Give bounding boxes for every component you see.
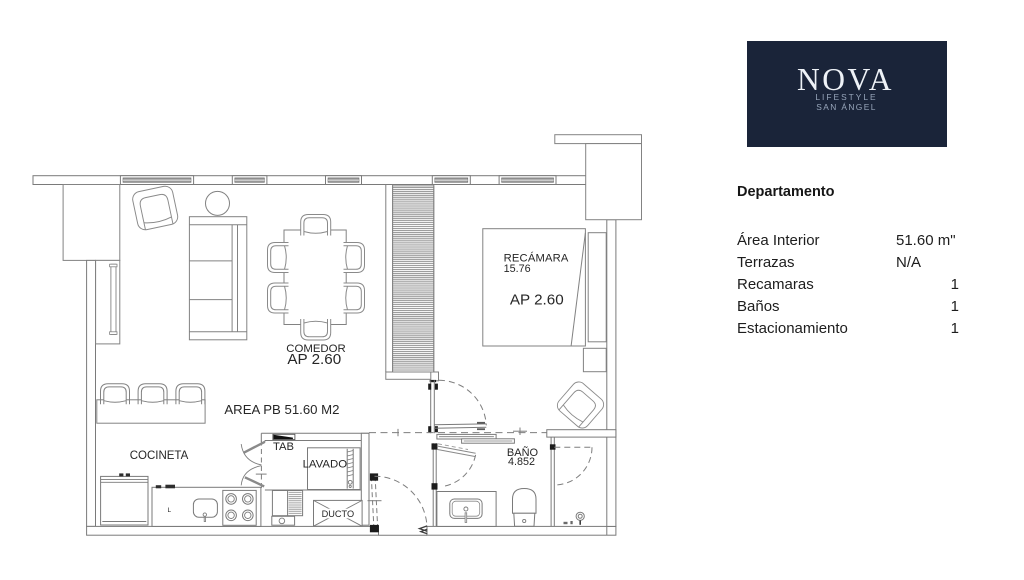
svg-text:15.76: 15.76	[504, 263, 531, 275]
svg-text:AP 2.60: AP 2.60	[510, 292, 564, 309]
svg-text:DUCTO: DUCTO	[322, 509, 355, 519]
svg-text:AP 2.60: AP 2.60	[287, 351, 341, 368]
svg-text:LAVADO: LAVADO	[303, 459, 348, 471]
svg-text:COCINETA: COCINETA	[130, 450, 189, 462]
svg-text:AREA PB 51.60 M2: AREA PB 51.60 M2	[224, 402, 339, 417]
svg-text:4.852: 4.852	[508, 456, 535, 468]
svg-text:L: L	[168, 507, 172, 514]
svg-text:TAB: TAB	[273, 441, 294, 453]
